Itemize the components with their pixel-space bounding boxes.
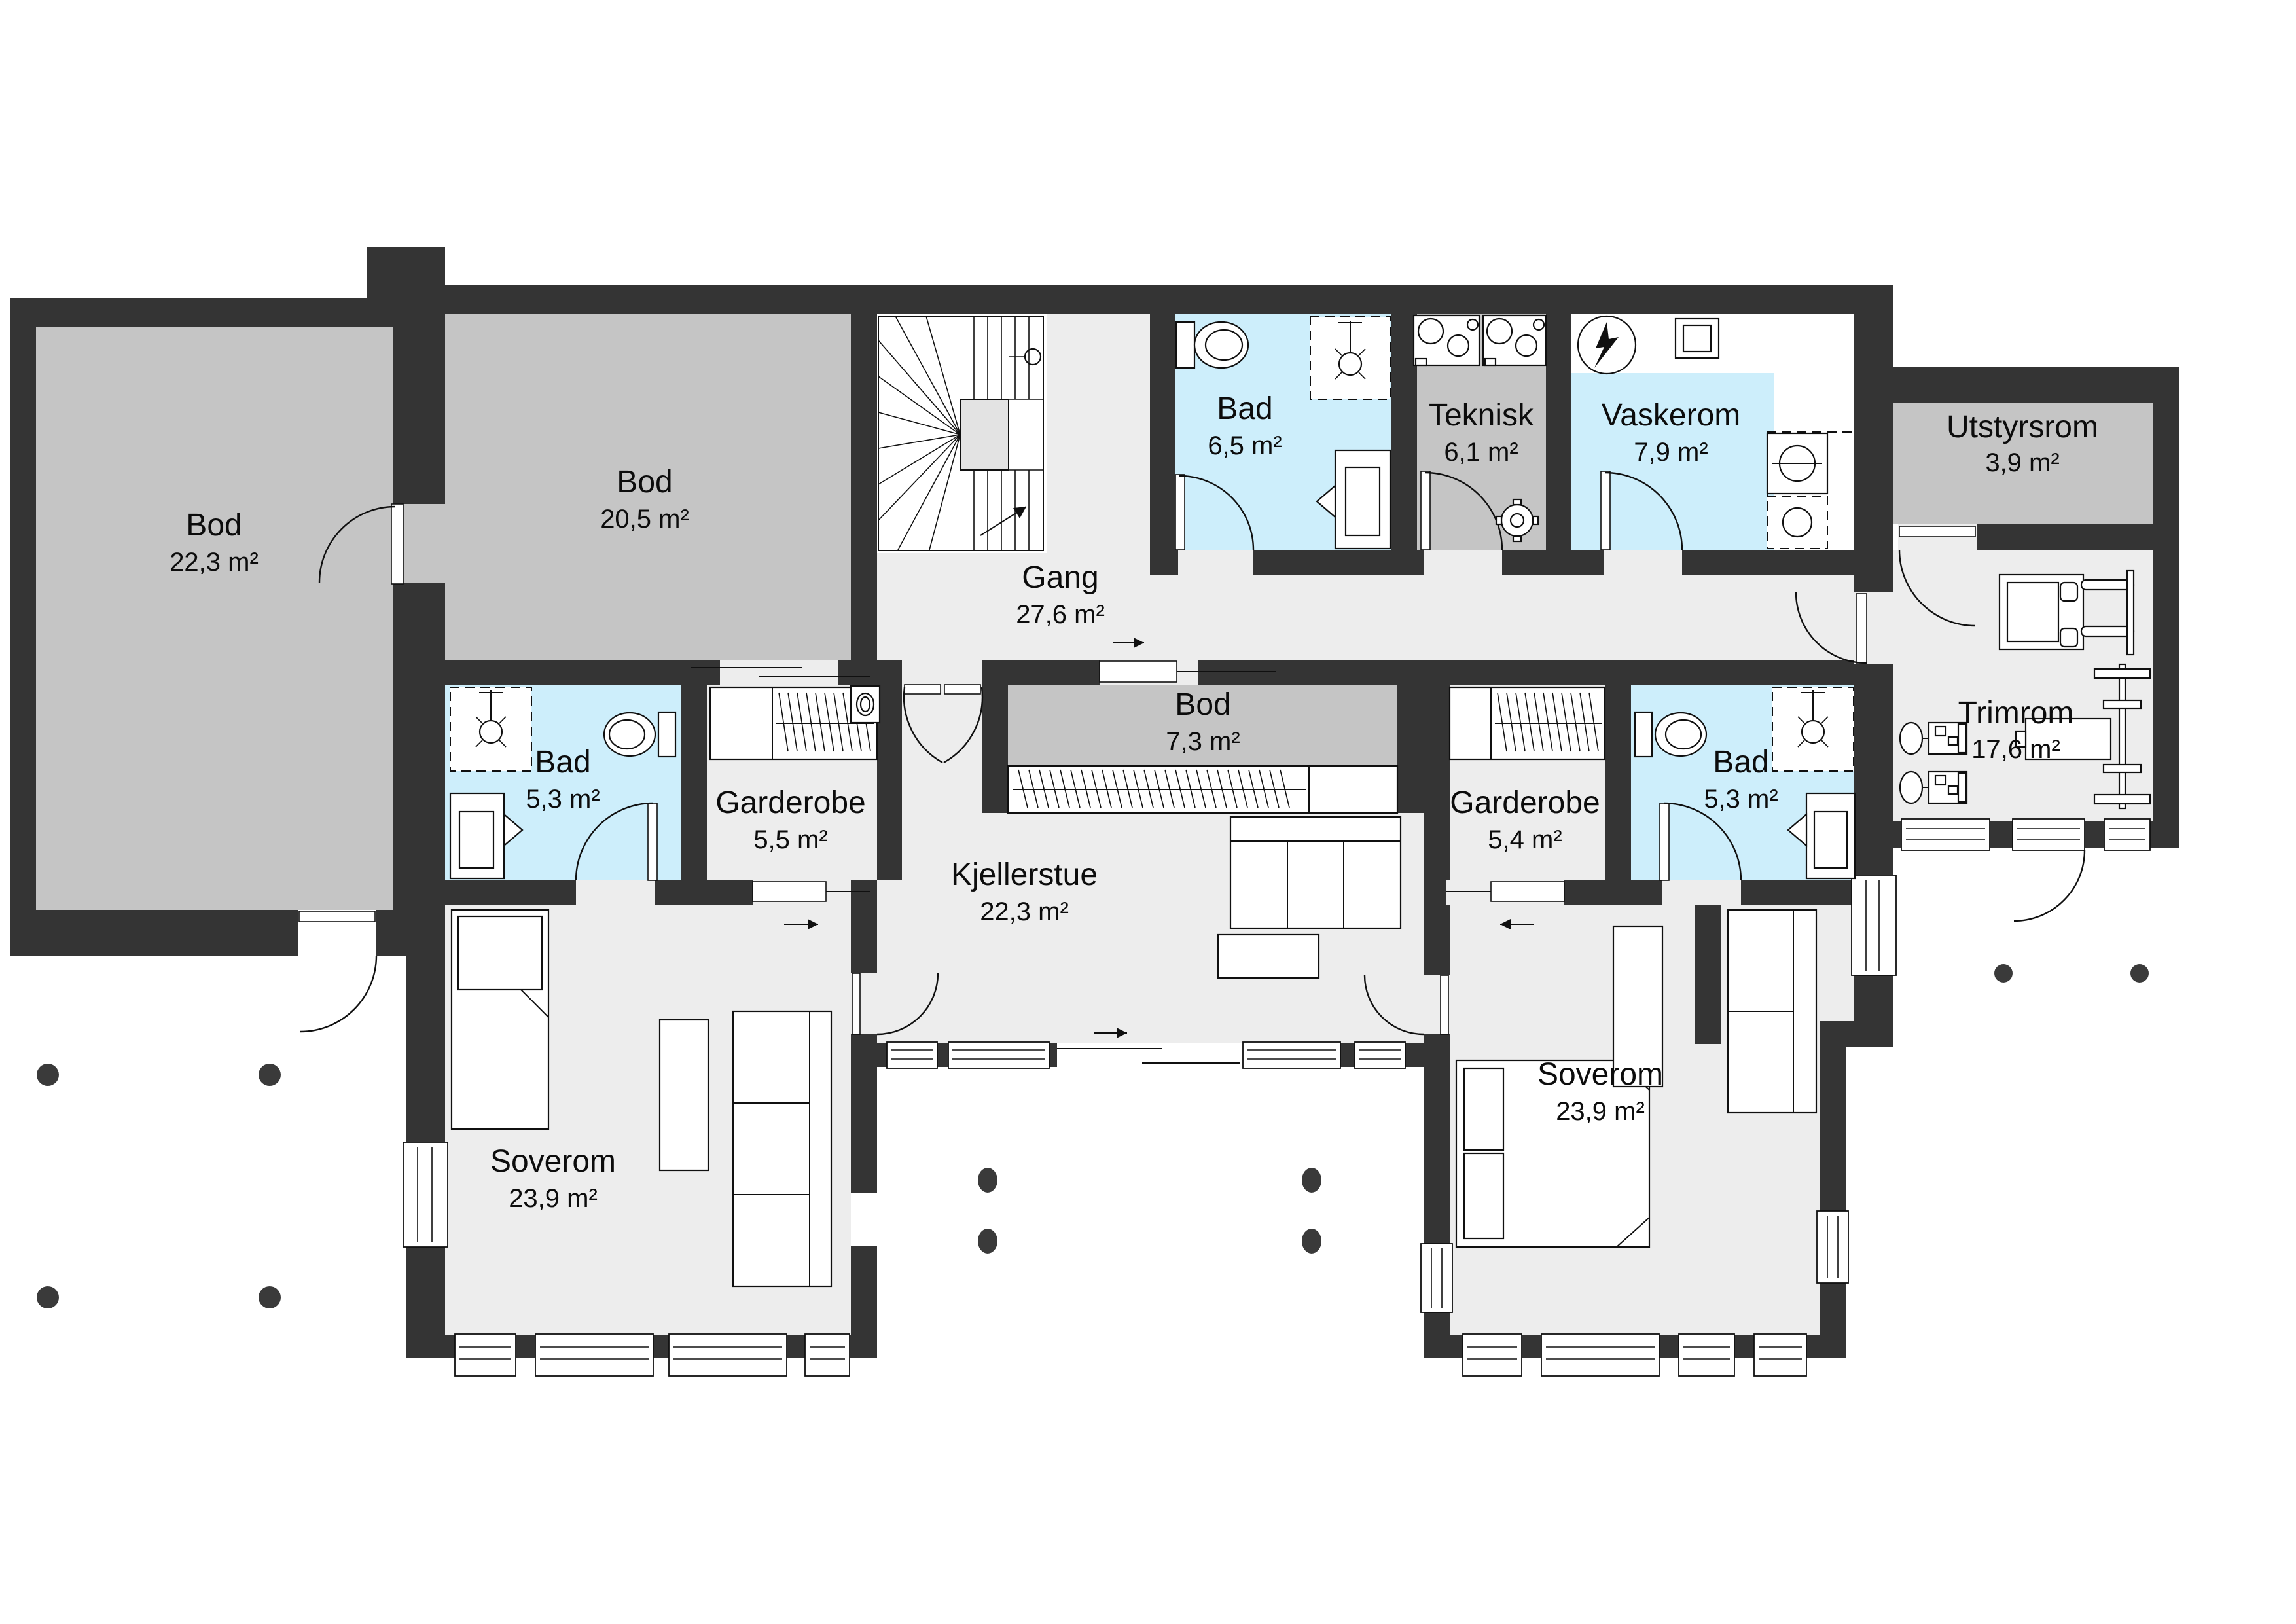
room-label-trimrom: Trimrom [1958,696,2074,731]
room-label-kjellerstue: Kjellerstue [951,857,1098,892]
sink-icon [851,686,880,723]
room-label-bad-left: Bad [535,745,590,780]
room-area-bad-left: 5,3 m² [526,785,600,814]
rowing-machine-icon [1900,723,1967,754]
room-label-bod-left: Bod [186,508,242,543]
room-area-bod-7: 7,3 m² [1166,727,1240,756]
wall-box-icon [1676,319,1719,358]
room-area-soverom-left: 23,9 m² [509,1184,598,1213]
door-trimrom-exit [2014,850,2085,921]
window [403,1142,448,1247]
window [2104,819,2150,850]
room-label-bod-7: Bod [1175,687,1230,722]
window [887,1042,937,1068]
column-dot [1302,1229,1321,1254]
bed [452,910,548,1129]
column-dot [259,1064,281,1086]
room-area-gang: 27,6 m² [1016,600,1105,629]
room-area-garderobe-right: 5,4 m² [1488,825,1562,854]
room-area-teknisk: 6,1 m² [1444,438,1518,467]
toilet-icon [604,712,675,757]
electrical-panel-icon [1578,316,1636,374]
column-dot [978,1229,997,1254]
room-area-bad-6-5: 6,5 m² [1208,431,1282,460]
room-label-bod-20: Bod [617,465,672,499]
room-label-garderobe-right: Garderobe [1450,785,1600,820]
window [1754,1334,1806,1376]
room-area-utstyrsrom: 3,9 m² [1985,448,2059,477]
stairs [878,316,1043,550]
shower-icon [1310,317,1390,399]
column-dot [978,1168,997,1193]
shower-icon [450,687,531,771]
window [455,1334,516,1376]
water-heater-icon [1483,316,1546,365]
column-dot [1994,964,2013,983]
room-floor-bod-left [36,327,393,910]
sofa [733,1011,831,1286]
column-dot [2130,964,2149,983]
sofa [1728,910,1816,1113]
window [1355,1042,1405,1068]
room-area-vaskerom: 7,9 m² [1634,438,1708,467]
wardrobe-rail [1008,766,1397,813]
window [1679,1334,1734,1376]
water-heater-icon [1414,316,1479,365]
room-label-vaskerom: Vaskerom [1602,398,1741,433]
room-area-bad-right: 5,3 m² [1704,785,1778,814]
room-label-bad-6-5: Bad [1217,391,1272,426]
column-dot [1302,1168,1321,1193]
column-dot [37,1286,59,1308]
window [948,1042,1049,1068]
room-area-trimrom: 17,6 m² [1971,735,2060,764]
window [1243,1042,1340,1068]
shower-icon [1772,687,1854,771]
room-area-bod-20: 20,5 m² [600,505,689,533]
window [1541,1334,1659,1376]
washing-machine-icon [1767,496,1827,549]
window [1901,819,1990,850]
side-table [660,1020,708,1170]
window-door [2013,819,2085,850]
room-area-garderobe-left: 5,5 m² [753,825,827,854]
window [1817,1211,1848,1283]
wardrobe-rail [1450,687,1605,759]
room-label-soverom-left: Soverom [490,1144,616,1179]
window [669,1334,787,1376]
window [1463,1334,1522,1376]
rowing-machine-icon [1900,772,1967,803]
coffee-table [1218,935,1319,978]
column-dot [37,1064,59,1086]
window [1421,1244,1452,1312]
room-label-garderobe-left: Garderobe [715,785,865,820]
room-area-kjellerstue: 22,3 m² [980,897,1069,926]
floor-plan: Bod 22,3 m² Bod 20,5 m² Gang 27,6 m² Bad… [0,0,2296,1624]
room-area-soverom-right: 23,9 m² [1556,1097,1645,1126]
room-label-utstyrsrom: Utstyrsrom [1946,410,2098,444]
window [805,1334,850,1376]
toilet-icon [1176,322,1248,368]
window [1852,875,1896,975]
toilet-icon [1635,712,1706,757]
room-label-soverom-right: Soverom [1537,1057,1663,1092]
room-area-bod-left: 22,3 m² [170,548,259,577]
column-dot [259,1286,281,1308]
room-label-gang: Gang [1022,560,1098,595]
sofa [1230,817,1401,928]
room-label-bad-right: Bad [1713,745,1768,780]
window [535,1334,653,1376]
room-label-teknisk: Teknisk [1429,398,1534,433]
